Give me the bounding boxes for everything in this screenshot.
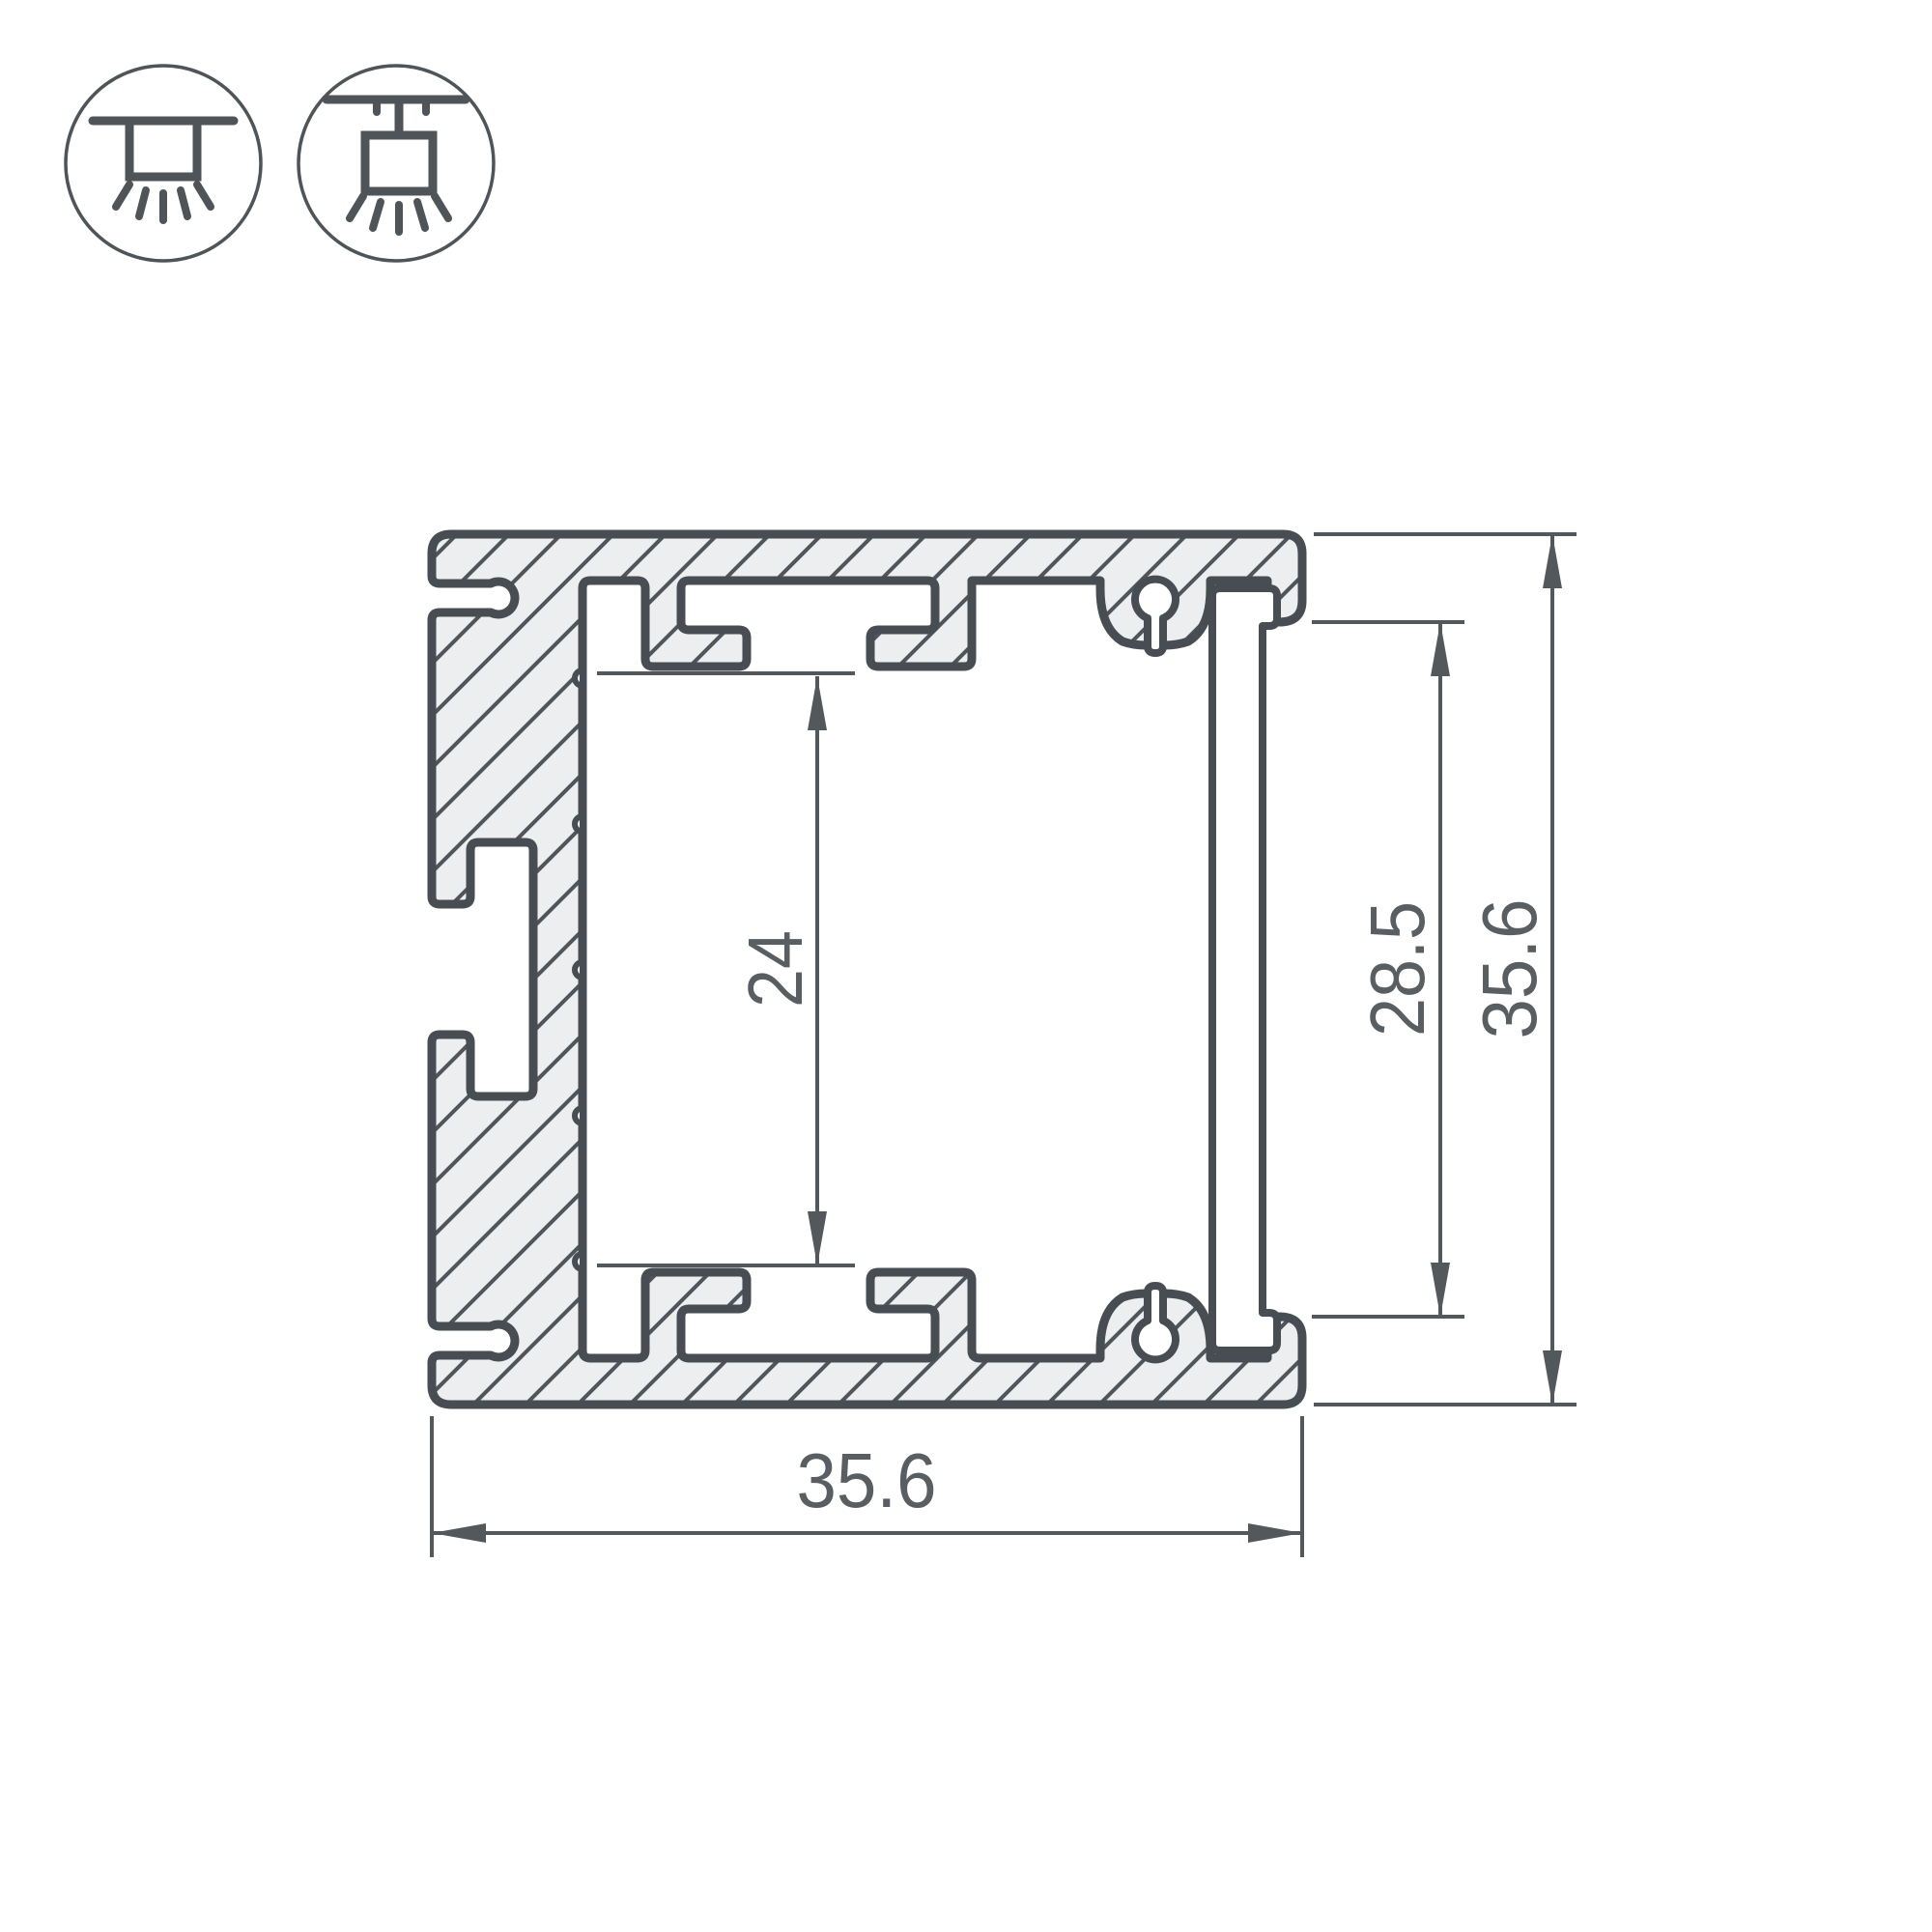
label-outer-width: 35.6 <box>797 1437 937 1523</box>
arrow-down <box>1543 1350 1562 1405</box>
arrow-up <box>808 676 827 730</box>
profile-drawing-canvas: 24 28.5 35.6 35.6 <box>0 0 1932 1932</box>
label-outer-height: 35.6 <box>1466 899 1552 1039</box>
arrow-right <box>1248 1523 1302 1543</box>
profile-section <box>432 534 1302 1405</box>
arrow-down <box>808 1211 827 1265</box>
arrow-down <box>1431 1263 1450 1317</box>
arrow-up <box>1543 534 1562 588</box>
light-rays <box>116 185 211 220</box>
label-opening-height: 28.5 <box>1354 901 1440 1037</box>
drawing-page: 24 28.5 35.6 35.6 <box>0 0 1932 1932</box>
diffuser-plate <box>1212 588 1277 1350</box>
label-inner-height: 24 <box>732 930 818 1008</box>
pendant-mount-icon <box>298 66 494 261</box>
surface-mount-icon <box>66 66 261 261</box>
aluminum-body <box>432 534 1302 1405</box>
luminaire-body <box>365 135 433 191</box>
light-rays <box>350 196 448 232</box>
icon-circle <box>66 66 261 261</box>
arrow-left <box>432 1523 486 1543</box>
arrow-up <box>1431 622 1450 676</box>
luminaire-body <box>129 121 197 177</box>
